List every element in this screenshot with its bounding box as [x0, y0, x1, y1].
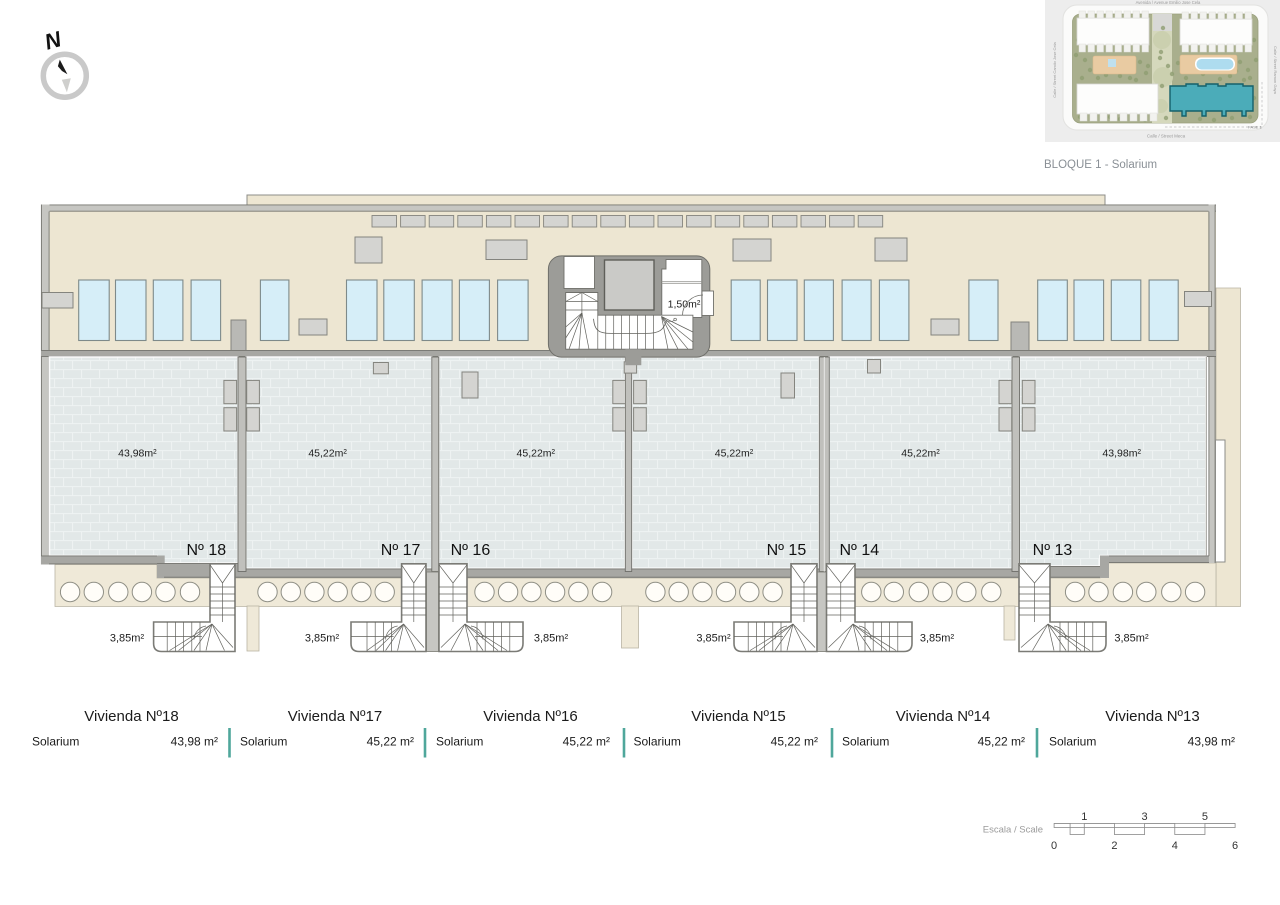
- svg-text:Solarium: Solarium: [32, 735, 79, 749]
- svg-text:Solarium: Solarium: [634, 735, 681, 749]
- svg-text:45,22 m²: 45,22 m²: [563, 735, 610, 749]
- svg-text:43,98m²: 43,98m²: [1102, 448, 1141, 460]
- svg-text:5: 5: [1202, 811, 1208, 823]
- svg-text:Vivienda Nº15: Vivienda Nº15: [691, 708, 785, 725]
- svg-text:6: 6: [1232, 840, 1238, 852]
- svg-text:1: 1: [1081, 811, 1087, 823]
- svg-text:3: 3: [1142, 811, 1148, 823]
- svg-text:45,22 m²: 45,22 m²: [978, 735, 1025, 749]
- svg-text:0: 0: [1051, 840, 1057, 852]
- svg-text:Escala / Scale: Escala / Scale: [983, 825, 1043, 836]
- svg-text:Nº 17: Nº 17: [381, 542, 421, 559]
- svg-text:Solarium: Solarium: [1049, 735, 1096, 749]
- svg-text:Nº 18: Nº 18: [186, 542, 226, 559]
- svg-text:Vivienda Nº14: Vivienda Nº14: [896, 708, 990, 725]
- svg-text:Nº 15: Nº 15: [767, 542, 807, 559]
- svg-text:Vivienda Nº17: Vivienda Nº17: [288, 708, 382, 725]
- svg-text:Calle / Street Camilo Jose Ce: Calle / Street Camilo Jose Cela: [1052, 41, 1057, 97]
- svg-text:43,98 m²: 43,98 m²: [171, 735, 218, 749]
- svg-text:Avenida / Avenue Emilio Jose: Avenida / Avenue Emilio Jose Cela: [1136, 0, 1201, 5]
- svg-text:45,22m²: 45,22m²: [901, 448, 940, 460]
- svg-text:45,22m²: 45,22m²: [308, 448, 347, 460]
- svg-text:1,50m²: 1,50m²: [668, 299, 701, 311]
- svg-text:Vivienda Nº13: Vivienda Nº13: [1105, 708, 1199, 725]
- svg-text:BLOQUE 1 - Solarium: BLOQUE 1 - Solarium: [1044, 159, 1157, 171]
- svg-text:Nº 16: Nº 16: [451, 542, 491, 559]
- svg-text:Calle / Street Meca: Calle / Street Meca: [1147, 134, 1186, 139]
- svg-text:Vivienda Nº16: Vivienda Nº16: [483, 708, 577, 725]
- svg-text:3,85m²: 3,85m²: [534, 633, 569, 645]
- svg-text:3,85m²: 3,85m²: [920, 633, 955, 645]
- svg-text:Nº 14: Nº 14: [839, 542, 879, 559]
- svg-text:3,85m²: 3,85m²: [305, 633, 340, 645]
- svg-text:4: 4: [1172, 840, 1178, 852]
- svg-text:3,85m²: 3,85m²: [696, 633, 731, 645]
- svg-text:Solarium: Solarium: [436, 735, 483, 749]
- svg-text:45,22 m²: 45,22 m²: [367, 735, 414, 749]
- svg-text:45,22 m²: 45,22 m²: [771, 735, 818, 749]
- svg-text:Solarium: Solarium: [240, 735, 287, 749]
- svg-text:43,98m²: 43,98m²: [118, 448, 157, 460]
- svg-text:FASE 1: FASE 1: [1248, 125, 1262, 130]
- svg-text:Calle / Street Ramon Gaya: Calle / Street Ramon Gaya: [1273, 46, 1278, 95]
- svg-text:Nº 13: Nº 13: [1033, 542, 1073, 559]
- svg-text:Vivienda Nº18: Vivienda Nº18: [84, 708, 178, 725]
- svg-text:45,22m²: 45,22m²: [715, 448, 754, 460]
- svg-text:45,22m²: 45,22m²: [517, 448, 556, 460]
- svg-text:2: 2: [1111, 840, 1117, 852]
- svg-text:3,85m²: 3,85m²: [110, 633, 145, 645]
- svg-text:Solarium: Solarium: [842, 735, 889, 749]
- svg-text:3,85m²: 3,85m²: [1114, 633, 1149, 645]
- svg-text:43,98 m²: 43,98 m²: [1188, 735, 1235, 749]
